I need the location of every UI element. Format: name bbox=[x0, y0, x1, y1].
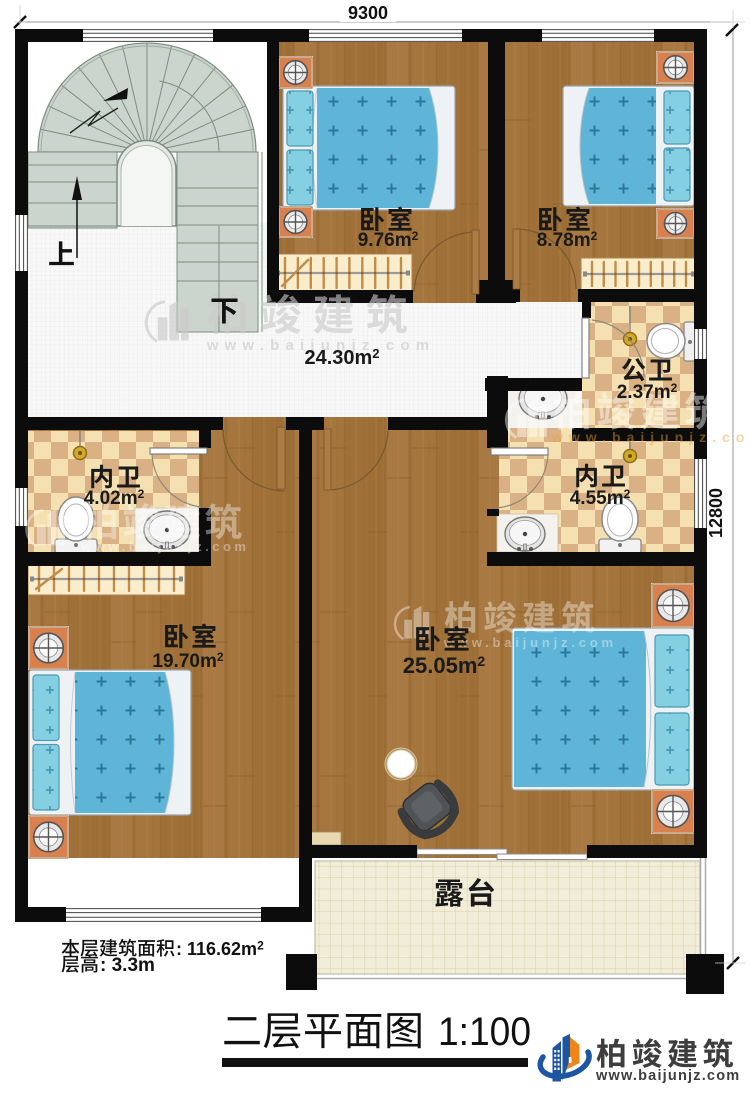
svg-text:: 116.62m2: : 116.62m2 bbox=[176, 939, 264, 960]
svg-text:9300: 9300 bbox=[348, 3, 388, 23]
svg-text:25.05m2: 25.05m2 bbox=[403, 653, 486, 678]
svg-text:www.baijunjz.com: www.baijunjz.com bbox=[443, 635, 617, 650]
svg-text:12800: 12800 bbox=[706, 488, 726, 538]
svg-text:19.70m2: 19.70m2 bbox=[152, 650, 223, 672]
svg-text:8.78m2: 8.78m2 bbox=[537, 229, 598, 251]
svg-text:9.76m2: 9.76m2 bbox=[358, 229, 419, 251]
svg-text:2.37m2: 2.37m2 bbox=[617, 381, 678, 403]
svg-text:: 3.3m: : 3.3m bbox=[100, 955, 155, 976]
svg-text:www.baijunjz.com: www.baijunjz.com bbox=[80, 539, 249, 554]
svg-text:4.02m2: 4.02m2 bbox=[84, 487, 145, 509]
svg-text:24.30m2: 24.30m2 bbox=[304, 346, 379, 369]
svg-text:www.baijunjz.com: www.baijunjz.com bbox=[595, 1068, 740, 1084]
svg-text:4.55m2: 4.55m2 bbox=[570, 487, 631, 509]
svg-text:www.baijunjz.com: www.baijunjz.com bbox=[551, 429, 750, 445]
svg-text:1:100: 1:100 bbox=[438, 1010, 531, 1054]
